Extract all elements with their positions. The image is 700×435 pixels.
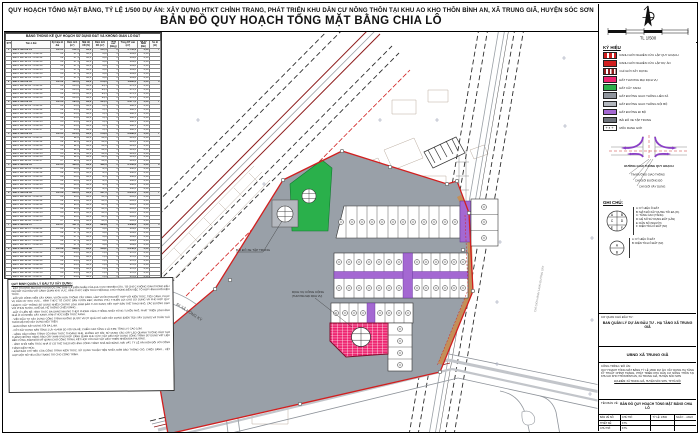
investor-label: CƠ QUAN CHỦ ĐẦU TƯ: [601, 315, 694, 319]
legend-label: ĐẤT ĐƯỜNG ĐI BỘ [620, 110, 646, 114]
legend-item: ĐẤT ĐƯỜNG GIAO THÔNG NỘI BỘ [603, 101, 693, 108]
sheet-header: QUY HOẠCH TỔNG MẶT BẰNG, TỶ LỆ 1/500 DỰ … [4, 4, 598, 32]
table-header-cell: Tổng DT sàn (m²) [119, 40, 138, 49]
commercial-sub-label: (THƯƠNG MẠI DỊCH VỤ) [292, 294, 322, 298]
north-scale-cell: TL 1/500 [598, 4, 697, 43]
table-header-cell: Số lô (lô) [150, 40, 161, 49]
project-label: CÔNG TRÌNH / ĐỒ ÁN: [601, 364, 694, 368]
junction-diagram: ĐƯỜNG GIAO THÔNG QUY HOẠCH TIM ĐƯỜNG GIA… [603, 135, 695, 193]
right-panel: KÝ HIỆU RANH GIỚI NGHIÊN CỨU LẬP QUY HOẠ… [598, 42, 696, 431]
junction-line-2: CHỈ GIỚI ĐƯỜNG ĐỎ [635, 177, 662, 182]
legend-item: BÃI ĐỖ XE TẬP TRUNG [603, 117, 693, 124]
regulation-item: - ĐẢM BẢO CHỈ TIÊU CỦA CÔNG TRÌNH KIẾN T… [12, 349, 170, 357]
drawing-label: TÊN BẢN VẼ: [601, 401, 618, 405]
legend-item: RANH GIỚI NGHIÊN CỨU LẬP QUY HOẠCH [603, 52, 693, 59]
legend-swatch-icon [603, 125, 617, 132]
regulations-box: QUY ĐỊNH QUẢN LÝ ĐẦU TƯ XÂY DỰNG: - ĐẤT … [7, 277, 174, 393]
zone-symbol-2-list: A: KÝ HIỆU Ô ĐẤTB: DIỆN TÍCH Ô ĐẤT (M²) [629, 238, 663, 258]
legend-title: KÝ HIỆU [603, 45, 693, 50]
table-header-cell: Hệ số SDĐ (lần) [137, 40, 149, 49]
legend-label: MỐC RANH GIỚI [620, 126, 643, 130]
project-section: CÔNG TRÌNH / ĐỒ ÁN: QUY HOẠCH TỔNG MẶT B… [599, 363, 696, 400]
land-use-table-box: BẢNG THỐNG KÊ QUY HOẠCH SỬ DỤNG ĐẤT VÀ K… [4, 32, 162, 279]
project-site [150, 149, 498, 434]
zone-circle-icon: A B C D E F [603, 207, 631, 235]
legend-swatch-icon [603, 117, 617, 124]
regulation-item: - ĐỐI VỚI CÔNG VIÊN CÂY XANH, VƯỜN HOA: … [12, 295, 170, 310]
table-header-row: STTTên ô đấtKý hiệu lô đấtDiện tích (m²)… [6, 40, 161, 49]
zone-circle-small-icon: A B [607, 238, 627, 258]
scale-bar: TL 1/500 [608, 28, 688, 41]
table-header-cell: Ký hiệu lô đất [50, 40, 64, 49]
legend-label: BÃI ĐỖ XE TẬP TRUNG [620, 118, 652, 122]
table-header-cell: Tầng cao (tầng) [108, 40, 119, 49]
signature-grid: BẢN VẼ SỐ:CHỦ TRÌ: TỶ LỆ: 1/500NGÀY: ...… [599, 415, 696, 431]
drawing-title: BẢN ĐỒ QUY HOẠCH TỔNG MẶT BẰNG CHIA LÔ [4, 15, 598, 27]
legend-label: ĐẤT ĐƯỜNG GIAO THÔNG LIÊN XÃ [620, 94, 669, 98]
zone-note-line: B: DIỆN TÍCH Ô ĐẤT (M²) [632, 242, 663, 246]
zone-symbol-1-list: A: KÝ HIỆU Ô ĐẤTB: MẬT ĐỘ XÂY DỰNG TỐI Đ… [633, 207, 679, 235]
table-header-cell: Mật độ XD (%) [80, 40, 92, 49]
legend-label: ĐẤT CÂY XANH [620, 86, 641, 90]
agency-section: UBND XÃ TRUNG GIÃ [599, 347, 696, 363]
legend-label: ĐẤT THƯƠNG MẠI DỊCH VỤ [620, 78, 658, 82]
junction-line-1: TIM ĐƯỜNG GIAO THÔNG [631, 171, 665, 176]
project-name: QUY HOẠCH TỔNG MẶT BẰNG TỶ LỆ 1/500 DỰ Á… [601, 369, 694, 379]
notes-legend-title: GHI CHÚ: [603, 200, 693, 205]
legend-swatch-icon [603, 92, 617, 99]
legend-item: ĐẤT ĐƯỜNG ĐI BỘ [603, 109, 693, 116]
drawing-section: TÊN BẢN VẼ: BẢN ĐỒ QUY HOẠCH TỔNG MẶT BẰ… [599, 400, 696, 415]
legend-swatch-icon [603, 84, 617, 91]
junction-line-3: CHỈ GIỚI XÂY DỰNG [639, 183, 665, 188]
legend-swatch-icon [603, 60, 617, 67]
legend-item: MỐC RANH GIỚI [603, 125, 693, 132]
legend-label: CHỈ GIỚI XÂY DỰNG [620, 69, 648, 73]
zone-symbol-2: A B A: KÝ HIỆU Ô ĐẤTB: DIỆN TÍCH Ô ĐẤT (… [603, 238, 693, 258]
legend-swatch-icon [603, 101, 617, 108]
project-title: QUY HOẠCH TỔNG MẶT BẰNG, TỶ LỆ 1/500 DỰ … [4, 7, 598, 14]
legend-label: ĐẤT ĐƯỜNG GIAO THÔNG NỘI BỘ [620, 102, 668, 106]
legend-swatch-icon [603, 52, 617, 59]
legend-swatch-icon [603, 76, 617, 83]
legend-swatch-icon [603, 68, 617, 75]
scale-label: TL 1/500 [640, 36, 657, 41]
lot-block-b [334, 253, 468, 298]
land-use-table: BẢNG THỐNG KÊ QUY HOẠCH SỬ DỤNG ĐẤT VÀ K… [5, 33, 161, 279]
svg-text:F: F [621, 226, 623, 230]
investor-name: BAN QUẢN LÝ DỰ ÁN ĐẦU TƯ - HẠ TẦNG XÃ TR… [601, 321, 694, 329]
project-location: ĐỊA ĐIỂM: XÃ TRUNG GIÃ, HUYỆN SÓC SƠN, T… [601, 380, 694, 383]
rail-corridor-label: CHỈ GIỚI HÀNH LANG ĐƯỜNG SẮT [532, 265, 545, 312]
table-header-cell: Tên ô đất [12, 40, 51, 49]
table-body: 1Đất ở liền kề 01 LK-01612,5 90,0551,3 5… [6, 49, 161, 279]
svg-text:B: B [621, 213, 623, 217]
legend-item: CHỈ GIỚI XÂY DỰNG [603, 68, 693, 75]
table-title: BẢNG THỐNG KÊ QUY HOẠCH SỬ DỤNG ĐẤT VÀ K… [6, 34, 161, 41]
commercial-label: DỊCH VỤ CÔNG CỘNG [292, 289, 325, 294]
regulations-list: - ĐẤT THƯƠNG MẠI DỊCH VỤ ĐƯỢC XÁC ĐỊNH L… [11, 285, 170, 357]
legend-item: ĐẤT THƯƠNG MẠI DỊCH VỤ [603, 76, 693, 83]
north-arrow-icon [643, 6, 655, 25]
legend-label: RANH GIỚI NGHIÊN CỨU LẬP QUY HOẠCH [620, 53, 679, 57]
legend-list: RANH GIỚI NGHIÊN CỨU LẬP QUY HOẠCH RANH … [603, 52, 693, 131]
plan-sheet: BÃI ĐỖ XE TẬP TRUNG DỊCH VỤ CÔNG CỘNG (T… [0, 0, 700, 435]
zone-note-line: D: HỆ SỐ SỬ DỤNG ĐẤT (LẦN) [636, 218, 679, 222]
investor-section: CƠ QUAN CHỦ ĐẦU TƯ: BAN QUẢN LÝ DỰ ÁN ĐẦ… [599, 314, 696, 347]
title-block: CƠ QUAN CHỦ ĐẦU TƯ: BAN QUẢN LÝ DỰ ÁN ĐẦ… [599, 313, 696, 431]
table-header-cell: Diện tích (m²) [64, 40, 80, 49]
agency-name: UBND XÃ TRUNG GIÃ [601, 348, 694, 361]
svg-text:E: E [611, 226, 613, 230]
signature-row: CHỦ TRÌ:KTS. [599, 426, 696, 431]
legend-item: ĐẤT CÂY XANH [603, 84, 693, 91]
legend-item: RANH GIỚI NGHIÊN CỨU LẬP DỰ ÁN [603, 60, 693, 67]
table-header-cell: Diện tích XD (m²) [92, 40, 108, 49]
zone-note-line: F: DIỆN TÍCH Ô ĐẤT (M²) [636, 225, 679, 229]
zone-symbol-1: A B C D E F A: KÝ HIỆU Ô ĐẤTB: MẬT ĐỘ XÂ… [603, 207, 693, 235]
svg-text:B: B [616, 250, 618, 254]
legend-label: RANH GIỚI NGHIÊN CỨU LẬP DỰ ÁN [620, 61, 671, 65]
legend-swatch-icon [603, 109, 617, 116]
legend-item: ĐẤT ĐƯỜNG GIAO THÔNG LIÊN XÃ [603, 92, 693, 99]
